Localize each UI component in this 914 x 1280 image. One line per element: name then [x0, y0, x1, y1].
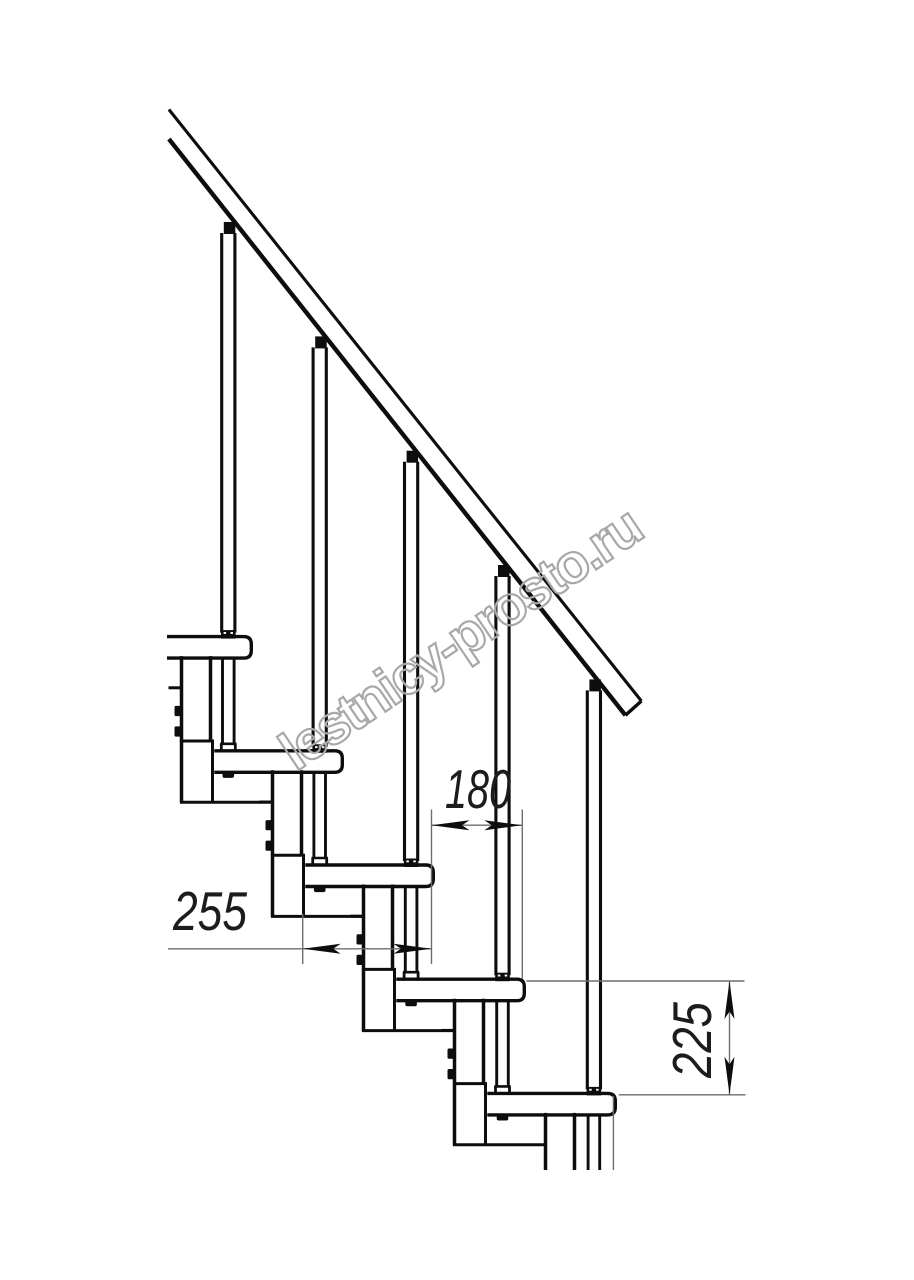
svg-text:255: 255: [172, 880, 247, 942]
svg-text:225: 225: [661, 1002, 723, 1079]
svg-text:180: 180: [445, 758, 511, 820]
